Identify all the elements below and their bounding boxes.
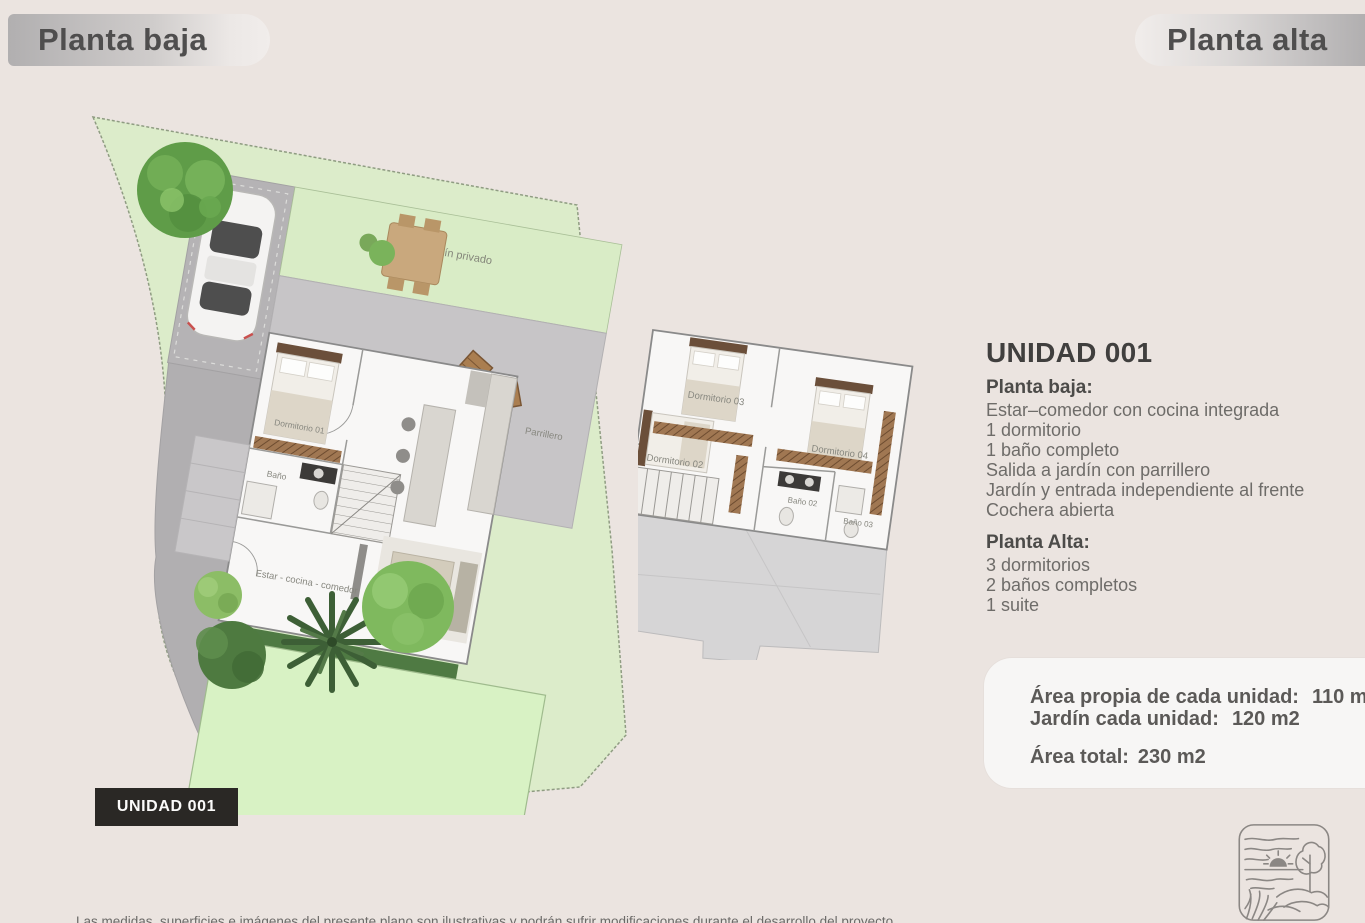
stairs bbox=[331, 465, 400, 544]
pb-item: Jardín y entrada independiente al frente bbox=[986, 480, 1365, 500]
pb-item: 1 baño completo bbox=[986, 440, 1365, 460]
planta-alta-label: Planta alta bbox=[1167, 22, 1328, 57]
header-pill-planta-alta: Planta alta bbox=[1135, 14, 1365, 66]
area-jardin-label: Jardín cada unidad: bbox=[1030, 708, 1219, 730]
unit-badge: UNIDAD 001 bbox=[95, 788, 238, 826]
bush-small bbox=[369, 240, 395, 266]
pb-item: Estar–comedor con cocina integrada bbox=[986, 400, 1365, 420]
header-pill-planta-baja: Planta baja bbox=[8, 14, 270, 66]
tree-small-light bbox=[194, 571, 242, 619]
area-line-jardin: Jardín cada unidad:120 m2 bbox=[1030, 708, 1300, 731]
pa-item: 1 suite bbox=[986, 595, 1365, 615]
tree-large-bottom bbox=[362, 561, 454, 653]
pb-item: Cochera abierta bbox=[986, 500, 1365, 520]
area-summary-box: Área propia de cada unidad:110 m2 Jardín… bbox=[984, 658, 1365, 788]
area-unidad-value: 110 m2 bbox=[1312, 686, 1365, 708]
area-total-value: 230 m2 bbox=[1138, 746, 1206, 768]
pa-item: 3 dormitorios bbox=[986, 555, 1365, 575]
area-total-label: Área total: bbox=[1030, 746, 1129, 768]
area-unidad-label: Área propia de cada unidad: bbox=[1030, 686, 1299, 708]
pa-item: 2 baños completos bbox=[986, 575, 1365, 595]
planta-alta-info: Planta Alta: 3 dormitorios 2 baños compl… bbox=[986, 532, 1365, 615]
ground-floor-site-plan: Jardín privado Parrillero bbox=[60, 95, 640, 815]
planta-alta-heading: Planta Alta: bbox=[986, 532, 1365, 554]
tree-large-top bbox=[137, 142, 233, 238]
planta-baja-label: Planta baja bbox=[38, 22, 207, 57]
pb-item: 1 dormitorio bbox=[986, 420, 1365, 440]
planta-baja-heading: Planta baja: bbox=[986, 377, 1365, 399]
area-jardin-value: 120 m2 bbox=[1232, 708, 1300, 730]
upper-floor-plan: Dormitorio 03 Dormitorio 02 Dormitorio 0… bbox=[638, 315, 958, 660]
planta-baja-info: Planta baja: Estar–comedor con cocina in… bbox=[986, 377, 1365, 520]
unit-title: UNIDAD 001 bbox=[986, 337, 1152, 369]
pb-item: Salida a jardín con parrillero bbox=[986, 460, 1365, 480]
area-line-unidad: Área propia de cada unidad:110 m2 bbox=[1030, 686, 1365, 709]
area-line-total: Área total:230 m2 bbox=[1030, 746, 1206, 769]
landscape-logo-icon bbox=[1218, 822, 1350, 923]
clipped-disclaimer-text: Las medidas, superficies e imágenes del … bbox=[76, 914, 996, 923]
